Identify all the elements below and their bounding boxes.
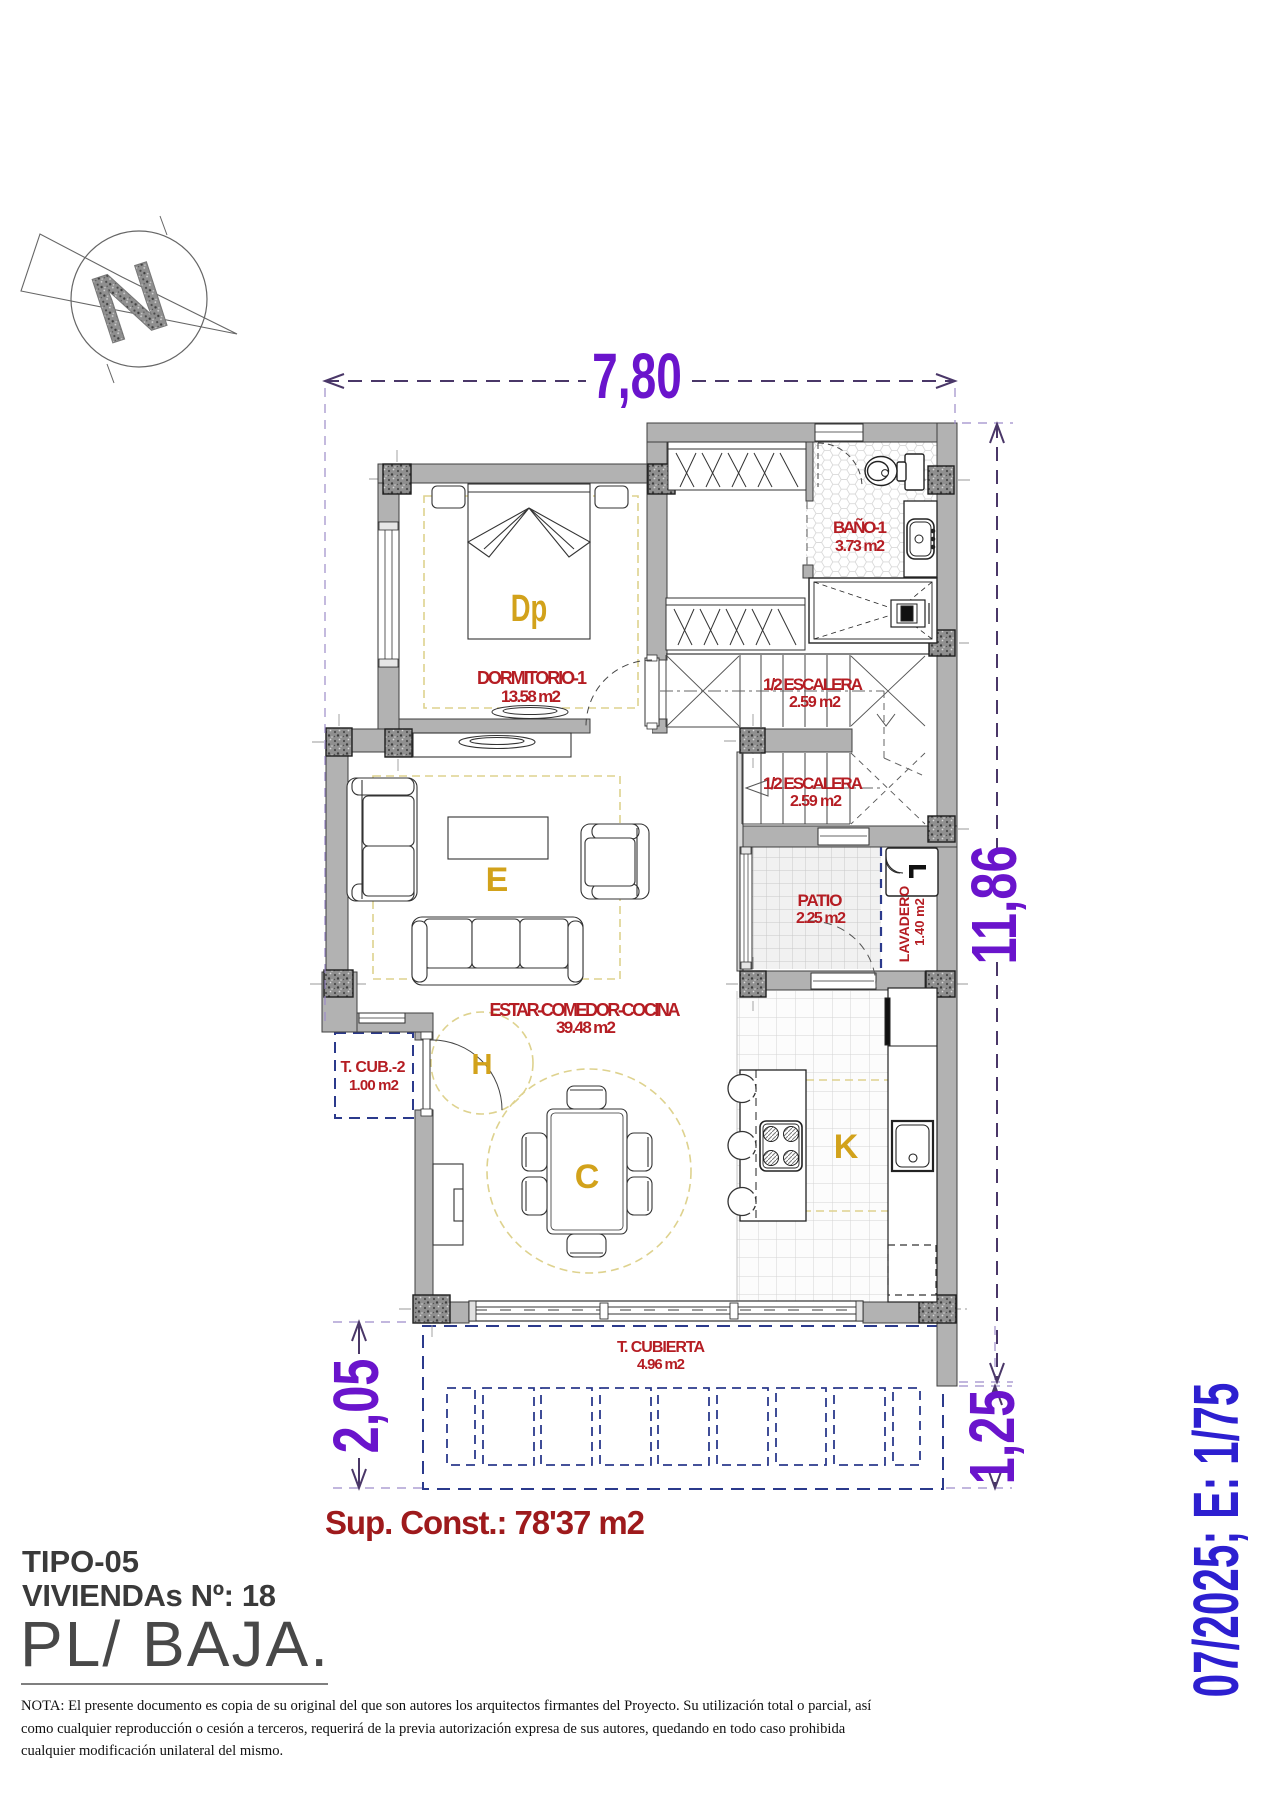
- svg-text:1.40 m2: 1.40 m2: [912, 898, 927, 946]
- svg-text:Sup. Const.: 78'37 m2: Sup. Const.: 78'37 m2: [325, 1504, 645, 1541]
- svg-text:DORMITORIO-1: DORMITORIO-1: [477, 668, 587, 688]
- svg-text:cualquier modificación unilate: cualquier modificación unilateral del mi…: [21, 1743, 283, 1759]
- svg-text:E: E: [486, 861, 509, 899]
- svg-text:1.00 m2: 1.00 m2: [349, 1077, 399, 1094]
- svg-text:como cualquier reproducción o: como cualquier reproducción o cesión a t…: [21, 1721, 846, 1737]
- svg-text:C: C: [575, 1158, 600, 1196]
- svg-text:07/2025; E: 1/75: 07/2025; E: 1/75: [1181, 1383, 1252, 1698]
- svg-text:ESTAR-COMEDOR-COCINA: ESTAR-COMEDOR-COCINA: [490, 1000, 681, 1020]
- svg-text:13.58 m2: 13.58 m2: [501, 687, 561, 706]
- svg-text:K: K: [834, 1128, 859, 1166]
- svg-text:39.48 m2: 39.48 m2: [556, 1018, 616, 1037]
- svg-text:4.96 m2: 4.96 m2: [637, 1356, 685, 1373]
- svg-text:11,86: 11,86: [960, 845, 1031, 964]
- svg-text:PL/ BAJA.: PL/ BAJA.: [20, 1608, 328, 1680]
- svg-text:T. CUB.-2: T. CUB.-2: [341, 1059, 406, 1076]
- svg-text:PATIO: PATIO: [798, 891, 843, 910]
- svg-text:3.73 m2: 3.73 m2: [835, 538, 885, 555]
- svg-text:TIPO-05: TIPO-05: [22, 1544, 139, 1579]
- svg-text:1/2 ESCALERA: 1/2 ESCALERA: [763, 774, 863, 793]
- svg-text:2.25 m2: 2.25 m2: [796, 910, 846, 927]
- svg-text:1/2 ESCALERA: 1/2 ESCALERA: [763, 675, 863, 694]
- svg-text:T. CUBIERTA: T. CUBIERTA: [617, 1339, 705, 1356]
- svg-text:LAVADERO: LAVADERO: [896, 886, 912, 963]
- svg-text:2,05: 2,05: [322, 1359, 393, 1454]
- svg-text:H: H: [472, 1049, 493, 1081]
- svg-text:1,25: 1,25: [958, 1390, 1029, 1485]
- svg-text:Dp: Dp: [511, 588, 547, 630]
- svg-text:2.59 m2: 2.59 m2: [789, 694, 841, 711]
- svg-text:2.59 m2: 2.59 m2: [790, 793, 842, 810]
- svg-text:N: N: [79, 239, 179, 364]
- svg-text:7,80: 7,80: [592, 341, 682, 412]
- svg-text:BAÑO-1: BAÑO-1: [833, 517, 887, 537]
- svg-text:NOTA: El presente documento es: NOTA: El presente documento es copia de …: [21, 1698, 871, 1714]
